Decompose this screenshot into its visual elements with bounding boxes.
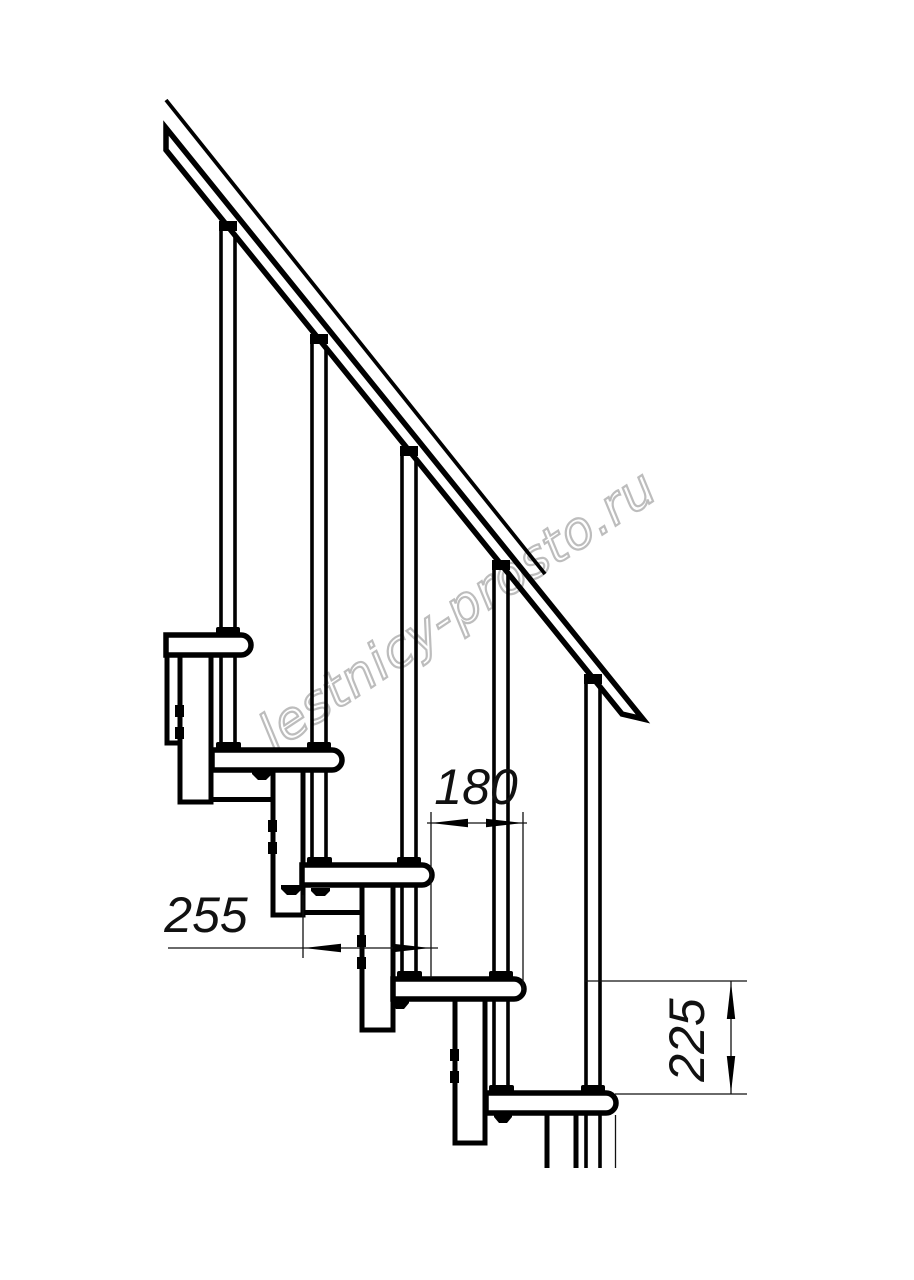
staircase-technical-drawing-page: 180 255 225 lestnicy-prosto.ru bbox=[0, 0, 914, 1280]
support-module-3 bbox=[362, 885, 393, 1030]
support-rod-1 bbox=[221, 655, 235, 750]
bolt-module-1a bbox=[175, 705, 184, 717]
dimension-run-180: 180 bbox=[427, 759, 527, 990]
rod-flange-3 bbox=[397, 971, 422, 980]
baluster-base-cap-2 bbox=[307, 742, 331, 752]
support-rod-5-cut bbox=[586, 1113, 600, 1168]
rod-flange-2 bbox=[307, 857, 332, 866]
baluster-base-cap-3 bbox=[397, 857, 421, 867]
bolt-module-1b bbox=[175, 727, 184, 739]
rod-flange-1 bbox=[216, 742, 241, 751]
bolt-module-4a bbox=[450, 1049, 459, 1061]
clamp-wedge-tread-3b bbox=[311, 888, 330, 896]
baluster-top-cap-5 bbox=[584, 674, 602, 684]
rod-flange-4 bbox=[489, 1085, 514, 1094]
staircase-technical-drawing: 180 255 225 lestnicy-prosto.ru bbox=[0, 0, 914, 1280]
dimension-label-225: 225 bbox=[659, 998, 715, 1083]
support-rod-2 bbox=[312, 770, 326, 865]
dimension-label-255: 255 bbox=[163, 887, 248, 943]
baluster-base-cap-5 bbox=[581, 1085, 605, 1095]
bolt-module-3b bbox=[357, 957, 366, 969]
tread-4 bbox=[393, 979, 524, 999]
bolt-module-4b bbox=[450, 1071, 459, 1083]
baluster-base-cap-4 bbox=[489, 971, 513, 981]
support-rod-4 bbox=[494, 999, 508, 1093]
tread-3 bbox=[302, 865, 432, 885]
clamp-wedge-tread-5 bbox=[494, 1113, 512, 1123]
arrowhead-down bbox=[727, 1056, 735, 1093]
arrowhead-left bbox=[431, 819, 468, 827]
support-module-4 bbox=[455, 999, 485, 1143]
baluster-5 bbox=[586, 679, 600, 1093]
baluster-1 bbox=[221, 227, 235, 635]
baluster-top-cap-2 bbox=[310, 334, 328, 344]
support-rod-3 bbox=[402, 885, 416, 979]
baluster-base-cap-1 bbox=[216, 627, 240, 637]
arrowhead-up bbox=[727, 982, 735, 1019]
baluster-top-cap-1 bbox=[219, 221, 237, 231]
bolt-module-2a bbox=[268, 820, 277, 832]
tread-1 bbox=[166, 635, 251, 655]
tread-5 bbox=[486, 1093, 616, 1113]
support-module-1 bbox=[180, 655, 211, 802]
arrowhead-left bbox=[304, 944, 341, 952]
bolt-module-3a bbox=[357, 935, 366, 947]
clamp-wedge-tread-2 bbox=[252, 770, 272, 780]
dimension-label-180: 180 bbox=[434, 759, 518, 815]
support-module-5-cut bbox=[547, 1113, 576, 1168]
dimension-rise-225: 225 bbox=[585, 981, 747, 1168]
baluster-top-cap-3 bbox=[400, 446, 418, 456]
bolt-module-2b bbox=[268, 842, 277, 854]
